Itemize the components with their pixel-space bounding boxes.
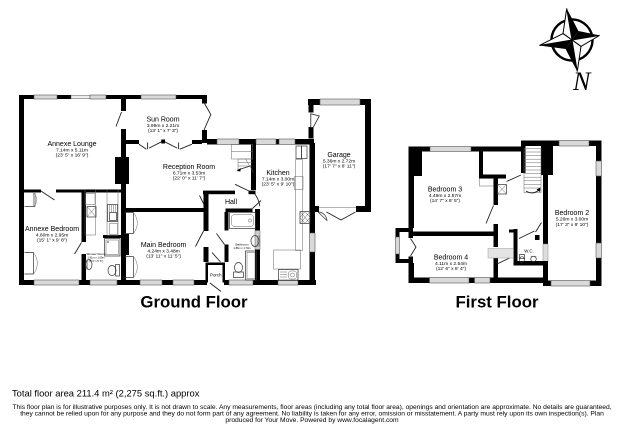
svg-text:(22' 0" x 11' 7"): (22' 0" x 11' 7") [173,176,206,182]
svg-text:Main Bedroom: Main Bedroom [141,242,187,249]
svg-text:Annexe Lounge: Annexe Lounge [47,141,96,148]
svg-text:Garage: Garage [327,152,350,159]
svg-text:(23' 5" x 9' 10"): (23' 5" x 9' 10") [262,181,295,187]
svg-text:Ground Floor: Ground Floor [140,293,248,312]
svg-text:produced for Your Move. Powere: produced for Your Move. Powered by www.f… [225,417,399,424]
svg-text:First Floor: First Floor [456,293,539,312]
svg-text:1.86m x 1.70m: 1.86m x 1.70m [233,246,250,250]
svg-text:N: N [572,67,592,96]
svg-text:(12' 6" x 8' 4"): (12' 6" x 8' 4") [436,266,466,272]
svg-text:Sun Room: Sun Room [146,117,179,124]
svg-text:Annexe Bedroom: Annexe Bedroom [25,226,79,233]
svg-text:(14' 7" x 8' 5"): (14' 7" x 8' 5") [430,198,460,204]
svg-text:(6' 3" x 5' 6"): (6' 3" x 5' 6") [89,259,104,263]
svg-text:Shower Room: Shower Room [86,252,106,256]
svg-text:(13' 1" x 7' 3"): (13' 1" x 7' 3") [148,128,178,134]
svg-text:Porch: Porch [210,272,222,277]
svg-text:(13' 11" x 11' 5"): (13' 11" x 11' 5") [146,254,181,260]
svg-text:(17' 7" x 8' 11"): (17' 7" x 8' 11") [323,164,356,170]
svg-text:(17' 3" x 9' 10"): (17' 3" x 9' 10") [556,222,589,228]
svg-text:Bathroom: Bathroom [235,243,249,247]
svg-text:Kitchen: Kitchen [266,170,289,177]
svg-text:Hall: Hall [225,199,238,206]
svg-text:(15' 1" x 9' 8"): (15' 1" x 9' 8") [37,237,67,243]
svg-text:Bedroom 3: Bedroom 3 [428,187,462,194]
svg-text:Bedroom 2: Bedroom 2 [555,210,589,217]
svg-text:Total floor area 211.4 m² (2,2: Total floor area 211.4 m² (2,275 sq.ft.)… [12,388,200,399]
svg-text:5.26m x 3.00m: 5.26m x 3.00m [556,217,588,223]
svg-text:Bedroom 4: Bedroom 4 [434,254,468,261]
svg-text:W.C.: W.C. [524,248,534,253]
svg-text:Reception Room: Reception Room [163,164,215,171]
svg-text:(23' 5" x 16' 9"): (23' 5" x 16' 9") [56,153,89,159]
